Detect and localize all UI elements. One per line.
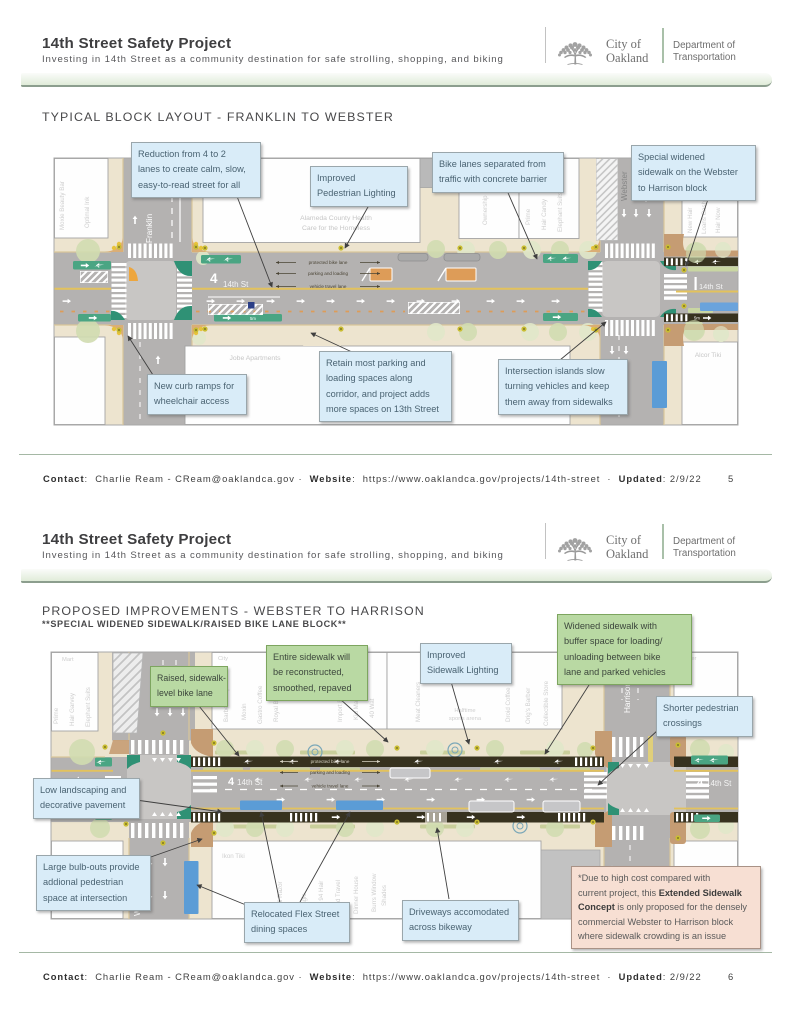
svg-text:Harrison: Harrison xyxy=(623,682,632,713)
svg-text:Care for the Homeless: Care for the Homeless xyxy=(302,225,371,232)
svg-text:Jobe Apartments: Jobe Apartments xyxy=(229,355,281,362)
svg-text:14th St: 14th St xyxy=(706,779,732,788)
svg-text:Moxin: Moxin xyxy=(241,703,248,720)
svg-text:Droid Coffee: Droid Coffee xyxy=(505,687,512,722)
svg-text:14th St: 14th St xyxy=(223,280,249,289)
svg-text:Dinner House: Dinner House xyxy=(353,876,360,914)
svg-text:Moxie Beauty Bar: Moxie Beauty Bar xyxy=(59,181,66,230)
svg-text:parking and loading: parking and loading xyxy=(308,271,349,276)
svg-text:Ownership: Ownership xyxy=(482,195,489,225)
svg-text:City: City xyxy=(218,656,228,662)
svg-text:5m: 5m xyxy=(694,316,700,321)
svg-text:5m: 5m xyxy=(250,316,256,321)
svg-text:14th St: 14th St xyxy=(237,778,263,787)
svg-text:40 Wat: 40 Wat xyxy=(369,698,376,718)
svg-text:Burrs Window: Burrs Window xyxy=(371,873,378,912)
svg-text:Halftime: Halftime xyxy=(454,708,475,714)
svg-text:Webster: Webster xyxy=(620,171,629,201)
svg-text:vehicle travel lane: vehicle travel lane xyxy=(310,284,347,289)
svg-text:4: 4 xyxy=(228,776,235,788)
svg-text:Mart: Mart xyxy=(62,657,74,663)
svg-text:Prime: Prime xyxy=(525,208,532,225)
svg-text:Shades: Shades xyxy=(381,885,388,906)
svg-text:Elephant Suits: Elephant Suits xyxy=(557,192,564,232)
svg-text:Elephant Suits: Elephant Suits xyxy=(85,687,92,727)
svg-text:Franklin: Franklin xyxy=(145,213,154,243)
svg-text:protected bike lane: protected bike lane xyxy=(309,260,348,265)
svg-text:Ikon Tiki: Ikon Tiki xyxy=(222,853,245,860)
svg-text:parking and loading: parking and loading xyxy=(310,770,351,775)
svg-text:Hair Candy: Hair Candy xyxy=(541,198,548,230)
svg-text:Hair Now: Hair Now xyxy=(715,207,722,233)
svg-text:Optimal Ink: Optimal Ink xyxy=(84,196,91,228)
svg-text:sports arena: sports arena xyxy=(449,716,482,722)
svg-text:Orig's Barber: Orig's Barber xyxy=(525,688,532,724)
svg-text:Meat Cleaners: Meat Cleaners xyxy=(415,682,422,722)
svg-text:Prime: Prime xyxy=(53,707,60,724)
svg-text:14th St: 14th St xyxy=(699,282,724,291)
svg-text:Alcor Tiki: Alcor Tiki xyxy=(695,352,721,359)
svg-text:Hair Garvey: Hair Garvey xyxy=(69,692,76,726)
svg-text:protected bike lane: protected bike lane xyxy=(311,759,350,764)
svg-text:Collectible Store: Collectible Store xyxy=(543,680,550,726)
svg-text:New Hair: New Hair xyxy=(687,208,694,233)
svg-text:vehicle travel lane: vehicle travel lane xyxy=(312,784,349,789)
svg-text:4: 4 xyxy=(210,271,218,286)
svg-text:Gastro Coffee: Gastro Coffee xyxy=(257,685,264,724)
